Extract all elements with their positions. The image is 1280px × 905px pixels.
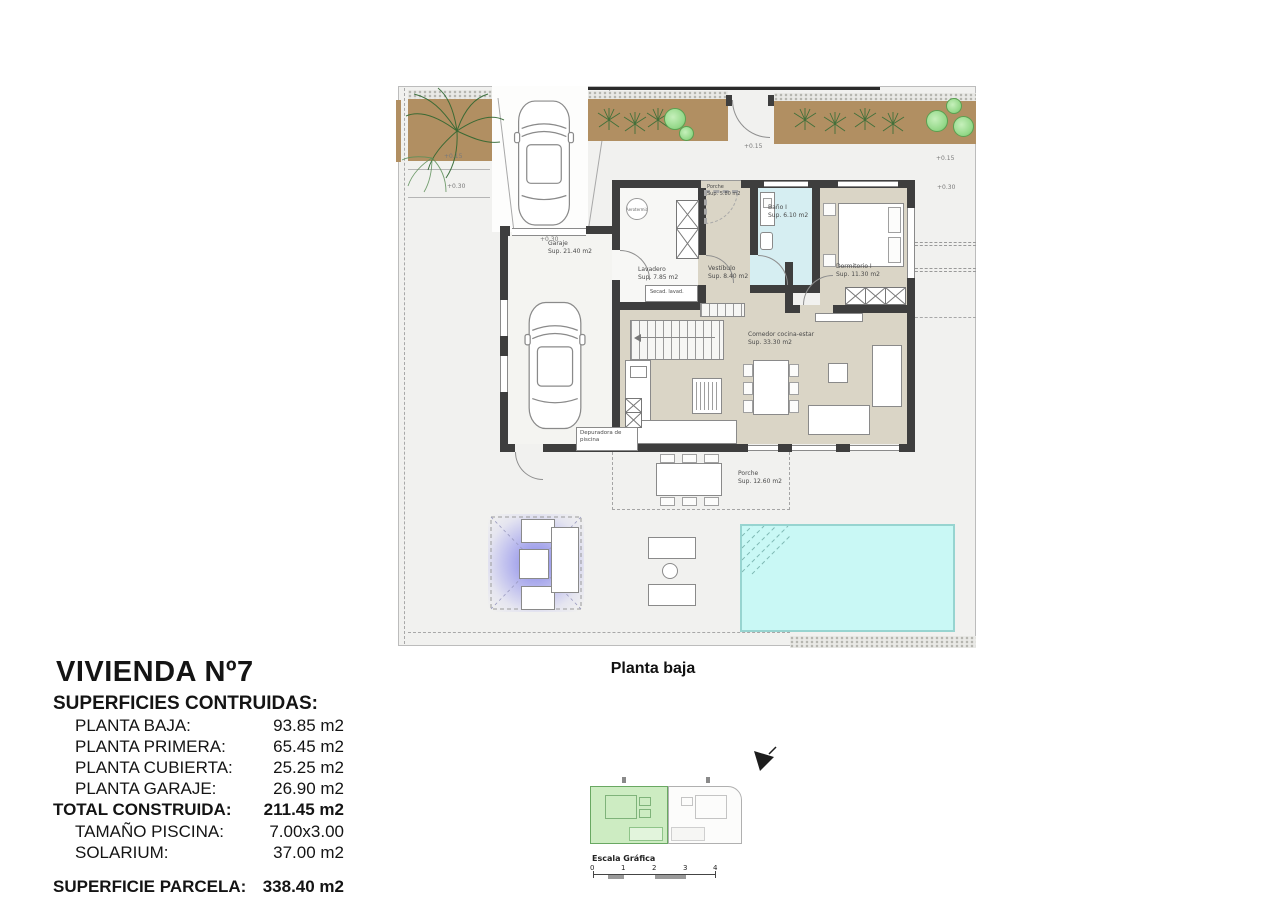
stair-arrow-line: [641, 337, 715, 338]
porch-chair: [660, 454, 675, 463]
mini-unit-highlighted: [590, 786, 668, 844]
corner-porch: [899, 444, 915, 452]
mini-roof-tick: [706, 777, 710, 783]
cooktop: [696, 382, 718, 410]
dining-chair: [789, 364, 799, 377]
wall-left: [612, 180, 620, 444]
room-area: Sup. 12.60 m2: [738, 478, 782, 486]
dining-chair: [789, 382, 799, 395]
room-area: Sup. 21.40 m2: [548, 248, 592, 256]
room-name: Lavadero: [638, 266, 678, 274]
mini-unit-neighbor: [668, 786, 742, 844]
column-porch-1: [778, 444, 792, 452]
gravel-strip-bottom: [790, 636, 976, 648]
door-gap-garage-lav: [612, 250, 620, 280]
row-label: PLANTA BAJA:: [75, 716, 191, 736]
room-name: Baño I: [768, 204, 808, 212]
window-garage-2: [500, 356, 508, 392]
mini-room-outline: [639, 809, 651, 818]
dining-chair: [743, 400, 753, 413]
row-label: SUPERFICIE PARCELA:: [53, 877, 246, 897]
mini-porch: [629, 827, 663, 841]
door-gap-lav-vest: [698, 255, 706, 285]
tv-bench: [815, 313, 863, 322]
gravel-band-mid: [588, 91, 728, 99]
row-label: SOLARIUM:: [75, 843, 169, 863]
porch-chair: [682, 497, 697, 506]
wall-garage-top-stub: [586, 226, 614, 234]
row-value: 338.40 m2: [263, 877, 344, 897]
room-area: Sup. 8.40 m2: [708, 273, 748, 281]
kitchen-sink: [630, 366, 647, 378]
row-label: TOTAL CONSTRUIDA:: [53, 800, 232, 820]
mini-site-map: [588, 782, 748, 848]
mini-room-outline: [639, 797, 651, 806]
level-mark: +0.30: [540, 236, 558, 243]
plan-sheet: Aerotermia Depuradora de piscina: [0, 0, 1280, 905]
car-top-view: [513, 98, 575, 232]
row-value: 65.45 m2: [273, 737, 344, 757]
pool-pump-label: Depuradora de piscina: [580, 430, 636, 445]
fern-plant-icon: [402, 86, 506, 198]
porch-chair: [682, 454, 697, 463]
room-name: Dormitorio I: [836, 263, 880, 271]
toilet: [760, 232, 773, 250]
sliding-glass-door: [748, 445, 899, 451]
porch-chair: [704, 497, 719, 506]
dwelling-title: VIVIENDA Nº7: [56, 656, 254, 689]
mini-porch: [671, 827, 705, 841]
room-label-porche-bottom: Porche Sup. 12.60 m2: [738, 470, 782, 486]
pergola-chair: [521, 519, 555, 543]
wall-lav-bottom: [620, 302, 698, 310]
washer-label: Secad. lavad.: [650, 289, 684, 296]
scale-bar-end-tick: [715, 871, 716, 878]
window-top-2: [838, 181, 898, 187]
room-name: Vestíbulo: [708, 265, 748, 273]
tree-icon: [953, 116, 974, 137]
pergola-chair: [521, 586, 555, 610]
porch-table: [656, 463, 722, 496]
row-label: PLANTA PRIMERA:: [75, 737, 226, 757]
wall-garage-corner: [500, 226, 510, 236]
mini-room-outline: [681, 797, 693, 806]
nightstand: [823, 254, 836, 267]
wall-vest-banio: [750, 188, 758, 255]
column-porch-2: [836, 444, 850, 452]
pool-steps-hatch: [742, 526, 792, 580]
shrub-icon: [792, 108, 818, 136]
room-area: Sup. 5.80 m2: [707, 191, 740, 198]
elevator-shaft: [676, 200, 699, 263]
sun-lounger: [648, 537, 696, 559]
scale-tick-label: 2: [652, 864, 656, 872]
shrub-icon: [880, 112, 906, 140]
room-area: Sup. 6.10 m2: [768, 212, 808, 220]
shrub-icon: [822, 112, 848, 140]
stair-upper-flight: [700, 303, 745, 317]
row-value: 7.00x3.00: [269, 822, 344, 842]
row-value: 25.25 m2: [273, 758, 344, 778]
porch-chair: [660, 497, 675, 506]
north-arrow-icon: [750, 746, 778, 778]
room-area: Sup. 33.30 m2: [748, 339, 814, 347]
wall-banio-dorm: [812, 188, 820, 285]
setback-line: [915, 242, 976, 246]
row-value: 26.90 m2: [273, 779, 344, 799]
plan-caption: Planta baja: [563, 660, 743, 678]
tree-icon: [679, 126, 694, 141]
row-label: PLANTA CUBIERTA:: [75, 758, 233, 778]
door-gap-banio: [750, 255, 758, 285]
level-mark: +0.30: [447, 183, 465, 190]
wardrobe: [845, 287, 906, 309]
room-label-banio: Baño I Sup. 6.10 m2: [768, 204, 808, 220]
armchair: [828, 363, 848, 383]
level-mark: +0.15: [444, 153, 462, 160]
window-dormitorio: [907, 208, 915, 278]
gravel-band-right: [774, 93, 976, 101]
room-label-vestibulo: Vestíbulo Sup. 8.40 m2: [708, 265, 748, 281]
room-area: Sup. 7.85 m2: [638, 274, 678, 282]
row-value: 93.85 m2: [273, 716, 344, 736]
info-panel: VIVIENDA Nº7 SUPERFICIES CONTRUIDAS: PLA…: [53, 660, 344, 900]
dining-table: [753, 360, 789, 415]
room-label-dormitorio: Dormitorio I Sup. 11.30 m2: [836, 263, 880, 279]
neighbor-bed: [396, 100, 401, 162]
mini-roof-tick: [622, 777, 626, 783]
room-name: Comedor cocina-estar: [748, 331, 814, 339]
surfaces-subtitle: SUPERFICIES CONTRUIDAS:: [53, 693, 318, 715]
pillow: [888, 237, 901, 263]
window-garage-1: [500, 300, 508, 336]
scale-tick-label: 3: [683, 864, 687, 872]
scale-bar-title: Escala Gráfica: [592, 854, 655, 863]
room-label-lavadero: Lavadero Sup. 7.85 m2: [638, 266, 678, 282]
shrub-icon: [852, 108, 878, 136]
wall-dorm-bottom-a: [787, 305, 800, 313]
sun-lounger: [648, 584, 696, 606]
level-mark: +0.30: [937, 184, 955, 191]
car-top-view: [524, 288, 586, 447]
room-name: Porche: [707, 184, 740, 191]
top-wall-line: [588, 87, 880, 90]
mini-room-outline: [605, 795, 637, 819]
level-mark: +0.15: [744, 143, 762, 150]
side-table-round: [662, 563, 678, 579]
room-name: Porche: [738, 470, 782, 478]
sofa-vertical: [872, 345, 902, 407]
boundary-dashed-bottom: [408, 632, 790, 633]
pillow: [888, 207, 901, 233]
tree-icon: [946, 98, 962, 114]
row-value: 37.00 m2: [273, 843, 344, 863]
setback-line: [915, 317, 976, 318]
level-mark: +0.15: [936, 155, 954, 162]
room-label-comedor: Comedor cocina-estar Sup. 33.30 m2: [748, 331, 814, 347]
window-top-1: [764, 181, 808, 187]
sofa-horizontal: [808, 405, 870, 435]
room-area: Sup. 11.30 m2: [836, 271, 880, 279]
scale-bar-segment: [655, 875, 686, 879]
mini-room-outline: [695, 795, 727, 819]
row-label: TAMAÑO PISCINA:: [75, 822, 224, 842]
porch-chair: [704, 454, 719, 463]
pergola-table: [519, 549, 549, 579]
heat-pump-label: Aerotermia: [626, 207, 648, 212]
door-gap-dorm: [800, 305, 833, 313]
row-label: PLANTA GARAJE:: [75, 779, 216, 799]
staircase: [630, 320, 724, 360]
dining-chair: [789, 400, 799, 413]
nightstand: [823, 203, 836, 216]
shrub-icon: [596, 108, 622, 136]
scale-tick-label: 1: [621, 864, 625, 872]
dining-chair: [743, 364, 753, 377]
stair-arrow: [634, 334, 641, 342]
row-value: 211.45 m2: [264, 800, 344, 820]
setback-line: [915, 268, 976, 272]
dining-chair: [743, 382, 753, 395]
room-label-porche-top: Porche Sup. 5.80 m2: [707, 184, 740, 198]
wall-garage-left: [500, 232, 508, 444]
tree-icon: [926, 110, 948, 132]
heat-pump-circle: Aerotermia: [626, 198, 648, 220]
pergola-sofa: [551, 527, 579, 593]
scale-bar-end-tick: [593, 871, 594, 878]
scale-bar-segment: [608, 875, 624, 879]
